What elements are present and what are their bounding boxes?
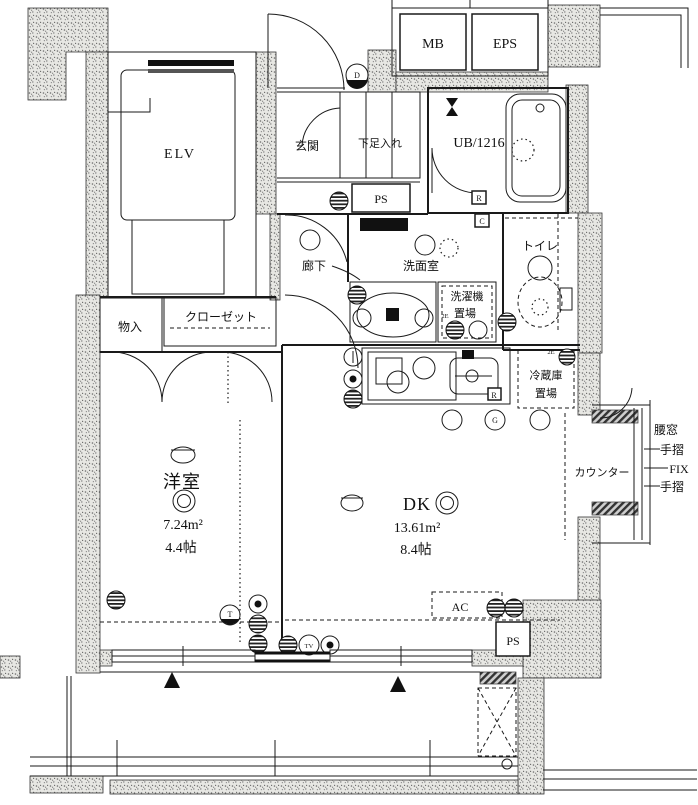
outlet-icon (446, 321, 464, 339)
room-label-laundry-1: 洗濯機 (451, 289, 484, 303)
room-label-dk: DK (403, 494, 431, 514)
unit-bath (428, 88, 568, 227)
room-label-western: 洋室 (163, 472, 201, 492)
outlet-icon (487, 599, 505, 617)
handrail-sill-icon (592, 502, 638, 515)
hallway-door-arc (285, 215, 347, 262)
duct-shading (360, 218, 408, 231)
ceiling-light-icon (415, 235, 435, 255)
floor-plan: ELV MB EPS D 玄関 下足入れ (0, 0, 698, 800)
label-counter: カウンター (575, 466, 630, 479)
label-handrail-bottom: 手摺 (660, 479, 684, 494)
closet-door-arc (162, 352, 212, 402)
ceiling-light-icon (341, 495, 363, 511)
outlet-icon (344, 390, 362, 408)
room-label-unit-bath: UB/1216 (453, 136, 504, 151)
meter-box-area (392, 0, 548, 76)
room-label-ps-top: PS (374, 192, 387, 206)
light-symbol-icon (436, 492, 458, 514)
outlet-icon (348, 286, 366, 304)
toilet-room (498, 214, 580, 350)
marker-phone: T (228, 610, 233, 619)
room-area-western-jo: 4.4帖 (165, 540, 197, 556)
outlet-icon (330, 192, 348, 210)
room-label-toilet: トイレ (522, 239, 558, 253)
bath-door-arc (432, 148, 477, 193)
elevator-door-icon (148, 60, 234, 66)
label-handrail-top: 手摺 (660, 442, 684, 457)
balcony (30, 672, 697, 790)
toilet-bowl-icon (518, 277, 562, 327)
closet-door-arc (112, 352, 162, 402)
ceiling-light-icon (171, 447, 195, 463)
faucet-icon (446, 98, 458, 107)
window-marker-icon (390, 676, 406, 692)
label-fix: FIX (669, 462, 689, 476)
room-area-dk-jo: 8.4帖 (400, 542, 432, 558)
ac-area (432, 592, 523, 618)
ceiling-light-icon (300, 230, 320, 250)
marker-kitchen-r: R (491, 391, 497, 400)
window-marker-icon (164, 672, 180, 688)
toilet-tank-icon (528, 256, 552, 280)
entrance-area (268, 14, 420, 182)
marker-ub-c: C (479, 217, 484, 226)
marker-2e-fridge: 2E (547, 349, 554, 356)
dk-door-arc (285, 295, 358, 368)
label-ac: AC (452, 600, 469, 614)
shoe-cabinet (340, 92, 420, 178)
room-label-eps: EPS (493, 37, 517, 52)
outlet-icon (498, 313, 516, 331)
room-label-storage: 物入 (118, 320, 142, 334)
room-label-elevator: ELV (164, 147, 196, 162)
vent-icon (440, 239, 458, 257)
marker-2e-laundry: 2E (441, 313, 448, 320)
room-label-washroom: 洗面室 (403, 258, 439, 273)
label-waist-window: 腰窓 (654, 422, 678, 437)
room-door-arc (222, 352, 272, 402)
marker-doorbell: D (354, 71, 360, 80)
room-label-fridge-2: 置場 (535, 387, 557, 400)
drain-icon (469, 321, 487, 339)
room-label-ps-bottom: PS (506, 634, 519, 648)
exterior-walkway-lines (600, 8, 688, 68)
south-windows (112, 646, 472, 692)
room-label-mb: MB (422, 37, 444, 52)
room-label-shoe-cabinet: 下足入れ (358, 137, 402, 150)
room-label-laundry-2: 置場 (454, 307, 476, 320)
outlet-icon (505, 599, 523, 617)
outlet-icon (107, 591, 125, 609)
room-label-hallway: 廊下 (302, 258, 326, 273)
handrail-sill-icon (592, 410, 638, 423)
entrance-door-arc (268, 14, 344, 90)
western-room (100, 345, 282, 652)
dining-kitchen (285, 295, 565, 620)
light-symbol-icon (173, 490, 195, 512)
room-label-closet: クローゼット (185, 310, 257, 324)
marker-ub-r: R (476, 194, 482, 203)
room-area-dk-m2: 13.61m² (394, 521, 441, 536)
floor-plan-svg: ELV MB EPS D 玄関 下足入れ (0, 0, 698, 800)
marker-tv: TV (305, 643, 314, 650)
bathtub-icon (506, 94, 566, 202)
outlet-icon (559, 349, 575, 365)
stove-icon (368, 352, 456, 400)
room-area-western-m2: 7.24m² (163, 518, 203, 533)
shower-drain-icon (512, 139, 534, 161)
room-label-fridge-1: 冷蔵庫 (530, 368, 563, 382)
elevator-shaft (108, 52, 256, 298)
room-label-entrance: 玄関 (295, 138, 319, 153)
marker-gas: G (492, 416, 498, 425)
outlet-cluster (249, 595, 339, 655)
